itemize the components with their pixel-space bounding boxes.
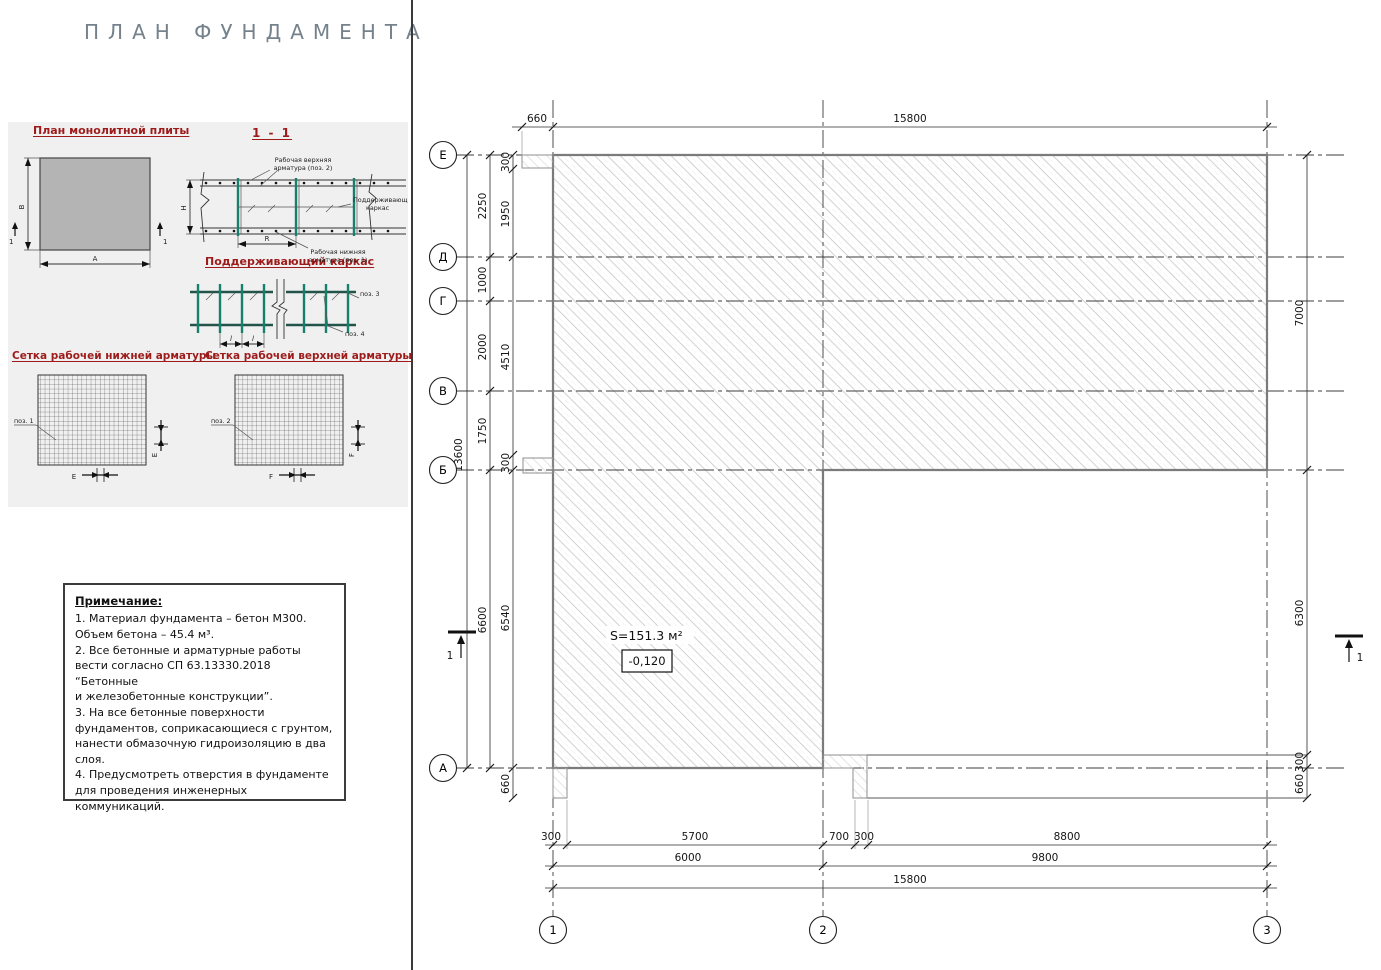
dim-15800-top: 15800 xyxy=(893,113,926,125)
dimension-chain-right: 7000 6300 300 660 xyxy=(1294,151,1311,802)
frame-label-pos3: поз. 3 xyxy=(360,290,380,298)
svg-text:арматура (поз. 1): арматура (поз. 1) xyxy=(309,256,368,264)
dim-2250: 2250 xyxy=(477,193,489,220)
details-panel: План монолитной плиты 1 - 1 Поддерживающ… xyxy=(8,122,408,507)
slab-section-mark-right: 1 xyxy=(163,238,167,246)
axis-bubbles-columns: 1 2 3 xyxy=(540,917,1281,944)
svg-text:1: 1 xyxy=(447,650,454,662)
section-dim-r: R xyxy=(265,235,270,243)
elevation-label: -0,120 xyxy=(628,654,665,668)
area-label: S=151.3 м² xyxy=(610,628,683,643)
foundation-plan-drawing: 660 15800 13600 2250 1000 2000 1750 6600… xyxy=(412,0,1381,970)
section-dim-h: Н xyxy=(180,205,188,210)
note-item-2: 2. Все бетонные и арматурные работы вест… xyxy=(75,643,334,705)
axis-label-D: Д xyxy=(439,250,448,264)
bottom-mesh-dim-e-v: E xyxy=(151,453,159,457)
dim-2000: 2000 xyxy=(477,334,489,361)
axis-bubbles-rows: Е Д Г В Б А xyxy=(430,142,457,782)
notes-block: Примечание: 1. Материал фундамента – бет… xyxy=(63,583,346,801)
dimension-chains-bottom: 300 5700 700 300 8800 6000 9800 15800 xyxy=(541,831,1277,892)
dim-7000: 7000 xyxy=(1294,300,1306,327)
dim-6000: 6000 xyxy=(675,852,702,864)
dim-300-right: 300 xyxy=(1294,752,1306,772)
frame-dim-l2: l xyxy=(252,335,254,343)
dimension-chains-left: 13600 2250 1000 2000 1750 6600 300 1950 … xyxy=(453,151,517,802)
bottom-mesh-dim-e-h: E xyxy=(72,473,76,481)
dim-700: 700 xyxy=(829,831,849,843)
top-mesh-dim-f-h: F xyxy=(269,473,273,481)
frame-label-pos4: поз. 4 xyxy=(345,330,365,338)
note-item-3: 3. На все бетонные поверхности фундамент… xyxy=(75,705,334,767)
page-title: ПЛАН ФУНДАМЕНТА xyxy=(84,20,429,44)
axis-label-G: Г xyxy=(439,294,446,308)
dim-4510: 4510 xyxy=(500,344,512,371)
section-label-top-rebar: Рабочая верхняя xyxy=(275,156,332,164)
axis-label-2: 2 xyxy=(819,923,826,937)
dim-9800: 9800 xyxy=(1032,852,1059,864)
dim-300-bottom-2: 300 xyxy=(854,831,874,843)
section-label-bottom-rebar: Рабочая нижняя xyxy=(310,248,365,256)
svg-text:каркас: каркас xyxy=(366,204,390,212)
dim-6540: 6540 xyxy=(500,605,512,632)
dim-8800: 8800 xyxy=(1054,831,1081,843)
svg-text:арматура (поз. 2): арматура (поз. 2) xyxy=(274,164,333,172)
axis-label-3: 3 xyxy=(1263,923,1270,937)
dim-6300: 6300 xyxy=(1294,600,1306,627)
bottom-mesh-drawing: поз. 1 E E xyxy=(14,375,168,482)
dim-6600: 6600 xyxy=(477,607,489,634)
dim-660-a: 660 xyxy=(500,774,512,794)
dim-1950: 1950 xyxy=(500,201,512,228)
slab-hatch-area xyxy=(553,155,1267,768)
slab-section-mark-left: 1 xyxy=(9,238,13,246)
slab-dim-a: А xyxy=(93,255,98,263)
axis-label-E: Е xyxy=(439,148,446,162)
top-mesh-pos-label: поз. 2 xyxy=(211,417,231,425)
dimension-chain-top: 660 15800 xyxy=(512,113,1277,131)
section-mark-right: 1 xyxy=(1335,636,1363,664)
section-mark-left: 1 xyxy=(447,632,476,662)
axis-label-B: Б xyxy=(439,463,447,477)
slab-plan-drawing: В А 1 1 xyxy=(9,158,167,268)
axis-label-1: 1 xyxy=(549,923,556,937)
top-mesh-drawing: поз. 2 F F xyxy=(211,375,365,482)
drawing-sheet: ПЛАН ФУНДАМЕНТА План монолитной плиты 1 … xyxy=(0,0,1381,970)
dim-660-right: 660 xyxy=(1294,774,1306,794)
top-mesh-dim-f-v: F xyxy=(348,453,356,457)
support-frame-drawing: поз. 3 поз. 4 l l xyxy=(190,279,380,348)
details-drawings: В А 1 1 Н xyxy=(8,122,408,507)
bottom-mesh-pos-label: поз. 1 xyxy=(14,417,34,425)
frame-dim-l1: l xyxy=(230,335,232,343)
dim-1750: 1750 xyxy=(477,418,489,445)
dim-1000: 1000 xyxy=(477,267,489,294)
note-item-4: 4. Предусмотреть отверстия в фундаменте … xyxy=(75,767,334,814)
note-item-1: 1. Материал фундамента – бетон М300. Объ… xyxy=(75,611,334,642)
dim-300-e: 300 xyxy=(500,152,512,172)
section-label-frame: Поддерживающий xyxy=(353,196,408,204)
dim-300-b: 300 xyxy=(500,453,512,473)
dim-660-top: 660 xyxy=(527,113,547,125)
slab-dim-b: В xyxy=(18,204,26,209)
dim-5700: 5700 xyxy=(682,831,709,843)
dim-15800-bottom: 15800 xyxy=(893,874,926,886)
section-1-1-drawing: Н R Рабочая верхняя арматура (поз. 2) По… xyxy=(180,156,408,264)
svg-text:1: 1 xyxy=(1357,652,1364,664)
notes-heading: Примечание: xyxy=(75,593,334,609)
axis-label-A: А xyxy=(439,761,447,775)
axis-label-V: В xyxy=(439,384,447,398)
dim-300-bottom-1: 300 xyxy=(541,831,561,843)
